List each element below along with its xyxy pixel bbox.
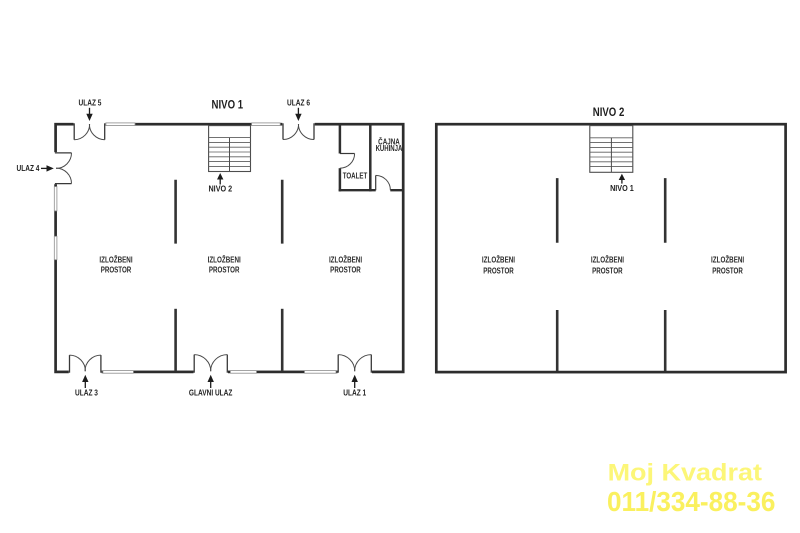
svg-text:PROSTOR: PROSTOR	[592, 267, 623, 276]
svg-text:IZLOŽBENI: IZLOŽBENI	[99, 255, 132, 265]
svg-text:IZLOŽBENI: IZLOŽBENI	[591, 255, 624, 265]
svg-text:ULAZ 6: ULAZ 6	[287, 98, 310, 108]
svg-text:ULAZ 3: ULAZ 3	[75, 388, 98, 398]
svg-text:IZLOŽBENI: IZLOŽBENI	[711, 255, 744, 265]
svg-text:IZLOŽBENI: IZLOŽBENI	[329, 255, 362, 265]
svg-text:011/334-88-36: 011/334-88-36	[607, 485, 775, 517]
svg-text:NIVO 2: NIVO 2	[208, 184, 232, 194]
svg-text:NIVO 1: NIVO 1	[212, 98, 244, 111]
svg-text:IZLOŽBENI: IZLOŽBENI	[208, 255, 241, 265]
svg-text:PROSTOR: PROSTOR	[330, 266, 361, 275]
svg-text:PROSTOR: PROSTOR	[101, 266, 132, 275]
svg-text:GLAVNI ULAZ: GLAVNI ULAZ	[189, 388, 233, 398]
svg-text:Moj Kvadrat: Moj Kvadrat	[608, 460, 763, 486]
svg-text:NIVO 1: NIVO 1	[610, 183, 634, 193]
svg-text:ULAZ 1: ULAZ 1	[343, 388, 366, 398]
svg-text:TOALET: TOALET	[343, 172, 368, 181]
svg-text:IZLOŽBENI: IZLOŽBENI	[482, 255, 515, 265]
svg-text:ULAZ 5: ULAZ 5	[79, 98, 102, 108]
svg-text:PROSTOR: PROSTOR	[483, 267, 514, 276]
svg-text:ULAZ 4: ULAZ 4	[17, 163, 41, 173]
svg-text:KUHINJA: KUHINJA	[376, 144, 403, 153]
svg-text:PROSTOR: PROSTOR	[209, 266, 240, 275]
svg-text:PROSTOR: PROSTOR	[712, 267, 743, 276]
svg-text:NIVO 2: NIVO 2	[593, 106, 625, 119]
